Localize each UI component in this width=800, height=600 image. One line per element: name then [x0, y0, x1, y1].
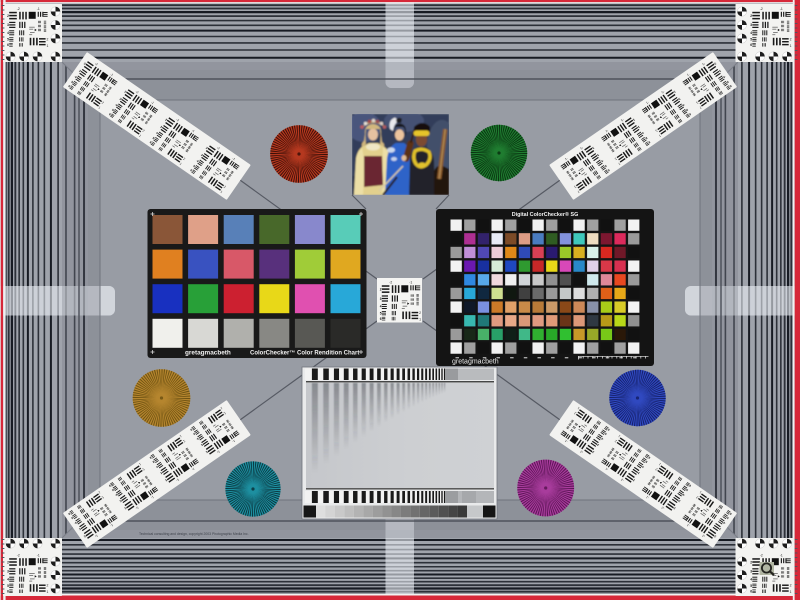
svg-text:gretagmacbeth: gretagmacbeth	[185, 350, 231, 357]
svg-text:Technical consulting and desig: Technical consulting and design, copyrig…	[139, 532, 249, 536]
svg-text:Digital ColorChecker® SG: Digital ColorChecker® SG	[512, 211, 579, 218]
svg-text:gretagmacbeth: gretagmacbeth	[452, 359, 499, 366]
svg-text:ColorChecker™ Color Rendition: ColorChecker™ Color Rendition Chart	[250, 350, 359, 357]
